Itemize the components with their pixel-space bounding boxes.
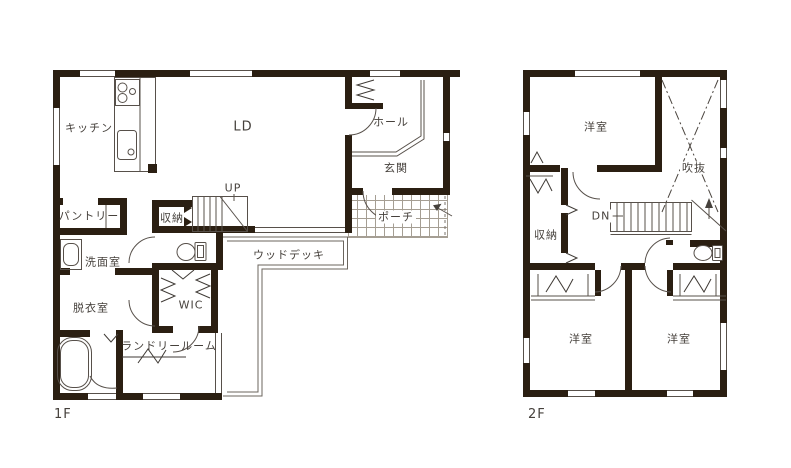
- hall-closet-zigzag-icon: [357, 80, 374, 100]
- window: [370, 70, 400, 77]
- wall: [152, 226, 223, 233]
- wall: [53, 393, 88, 400]
- wall: [673, 263, 727, 270]
- window: [523, 112, 530, 135]
- window: [190, 70, 252, 77]
- wall: [523, 70, 575, 77]
- wall: [720, 70, 727, 80]
- window: [720, 80, 727, 108]
- room-label-pantry: パントリー: [59, 211, 120, 222]
- closet-zigzag-icon: [530, 179, 552, 193]
- wall: [625, 270, 632, 397]
- window: [143, 393, 180, 400]
- window: [720, 323, 727, 370]
- stairs-2f: [611, 200, 727, 235]
- wall: [180, 393, 222, 400]
- wall: [693, 390, 727, 397]
- wall: [655, 77, 662, 172]
- toilet-icon: [177, 243, 206, 261]
- floor-1-label: 1F: [54, 407, 72, 422]
- bedroom3-hanger-zigzag-icon: [684, 276, 711, 292]
- wall: [392, 188, 450, 195]
- bedroom2-closet-lines: [531, 274, 595, 300]
- toilet-icon: [694, 246, 723, 261]
- closet-chevron-icon: [531, 152, 543, 163]
- window: [443, 133, 450, 141]
- void-x-icon: [662, 80, 718, 212]
- wall: [152, 270, 159, 333]
- wall: [597, 165, 662, 172]
- room-label-bedroom-3: 洋室: [667, 334, 691, 345]
- wall: [53, 198, 63, 205]
- wall: [561, 168, 568, 205]
- stairs-up-arrow-icon: [705, 198, 713, 219]
- window: [80, 70, 115, 77]
- window: [568, 390, 595, 397]
- wall: [561, 213, 568, 253]
- wall: [53, 330, 90, 337]
- wall: [115, 70, 190, 77]
- wall: [640, 70, 727, 77]
- stairs-down-label: DN: [590, 210, 613, 223]
- bathtub-icon: [58, 338, 118, 391]
- wall: [690, 240, 727, 247]
- wall: [621, 263, 645, 270]
- wall: [345, 188, 363, 195]
- window: [523, 338, 530, 363]
- wall: [443, 70, 450, 133]
- wall: [523, 390, 568, 397]
- stairs-up-label: UP: [225, 183, 242, 194]
- wall: [152, 326, 173, 333]
- room-label-laundry-room: ランドリールーム: [121, 341, 217, 352]
- wall: [198, 326, 218, 333]
- floor-2-label: 2F: [528, 407, 546, 422]
- room-label-hall: ホール: [373, 117, 409, 128]
- floor-plan-canvas: キッチン LD ホール 玄関 パントリー 収納 UP ポーチ 洗面室 ウッドデッ…: [0, 0, 791, 468]
- wall: [667, 270, 673, 296]
- room-label-wic: WIC: [179, 300, 204, 311]
- room-label-bedroom-2: 洋室: [569, 334, 593, 345]
- room-label-storage-1f: 収納: [160, 213, 184, 224]
- wall: [222, 226, 255, 233]
- wall: [152, 263, 223, 270]
- wall: [523, 70, 530, 112]
- door-arcs-2f: [573, 172, 671, 292]
- wall: [666, 240, 673, 245]
- room-label-porch: ポーチ: [376, 211, 416, 224]
- sliding-door-window: [255, 227, 345, 233]
- room-label-void: 吹抜: [680, 162, 708, 175]
- wall: [443, 141, 450, 190]
- counter-end-block: [148, 164, 157, 173]
- room-label-entrance: 玄関: [384, 163, 408, 174]
- window: [88, 393, 118, 400]
- room-label-bedroom-1: 洋室: [584, 122, 608, 133]
- kitchen-counter: [114, 77, 156, 172]
- wall: [345, 103, 383, 109]
- wall: [211, 270, 218, 333]
- wall: [524, 165, 560, 172]
- wall: [53, 70, 60, 108]
- wall: [523, 263, 595, 270]
- wall: [400, 70, 460, 77]
- wic-hanger-zigzag-icon: [161, 270, 210, 302]
- wall: [345, 135, 352, 233]
- wall: [595, 270, 601, 296]
- window: [575, 70, 640, 77]
- room-label-kitchen: キッチン: [65, 123, 113, 134]
- wall: [252, 70, 370, 77]
- room-label-ld: LD: [233, 121, 252, 134]
- wall: [53, 228, 127, 235]
- washbasin-icon: [61, 240, 82, 270]
- wall: [115, 268, 152, 275]
- wall: [53, 268, 70, 275]
- room-label-wood-deck: ウッドデッキ: [253, 250, 325, 261]
- window: [667, 390, 693, 397]
- room-label-washroom: 洗面室: [85, 257, 121, 268]
- window: [53, 108, 60, 165]
- bedroom3-closet-lines: [673, 274, 726, 300]
- wall: [720, 108, 727, 148]
- bedroom2-hanger-zigzag-icon: [546, 276, 573, 292]
- room-label-dressing-room: 脱衣室: [73, 303, 109, 314]
- room-label-storage-2f: 収納: [534, 230, 558, 241]
- window: [720, 148, 727, 158]
